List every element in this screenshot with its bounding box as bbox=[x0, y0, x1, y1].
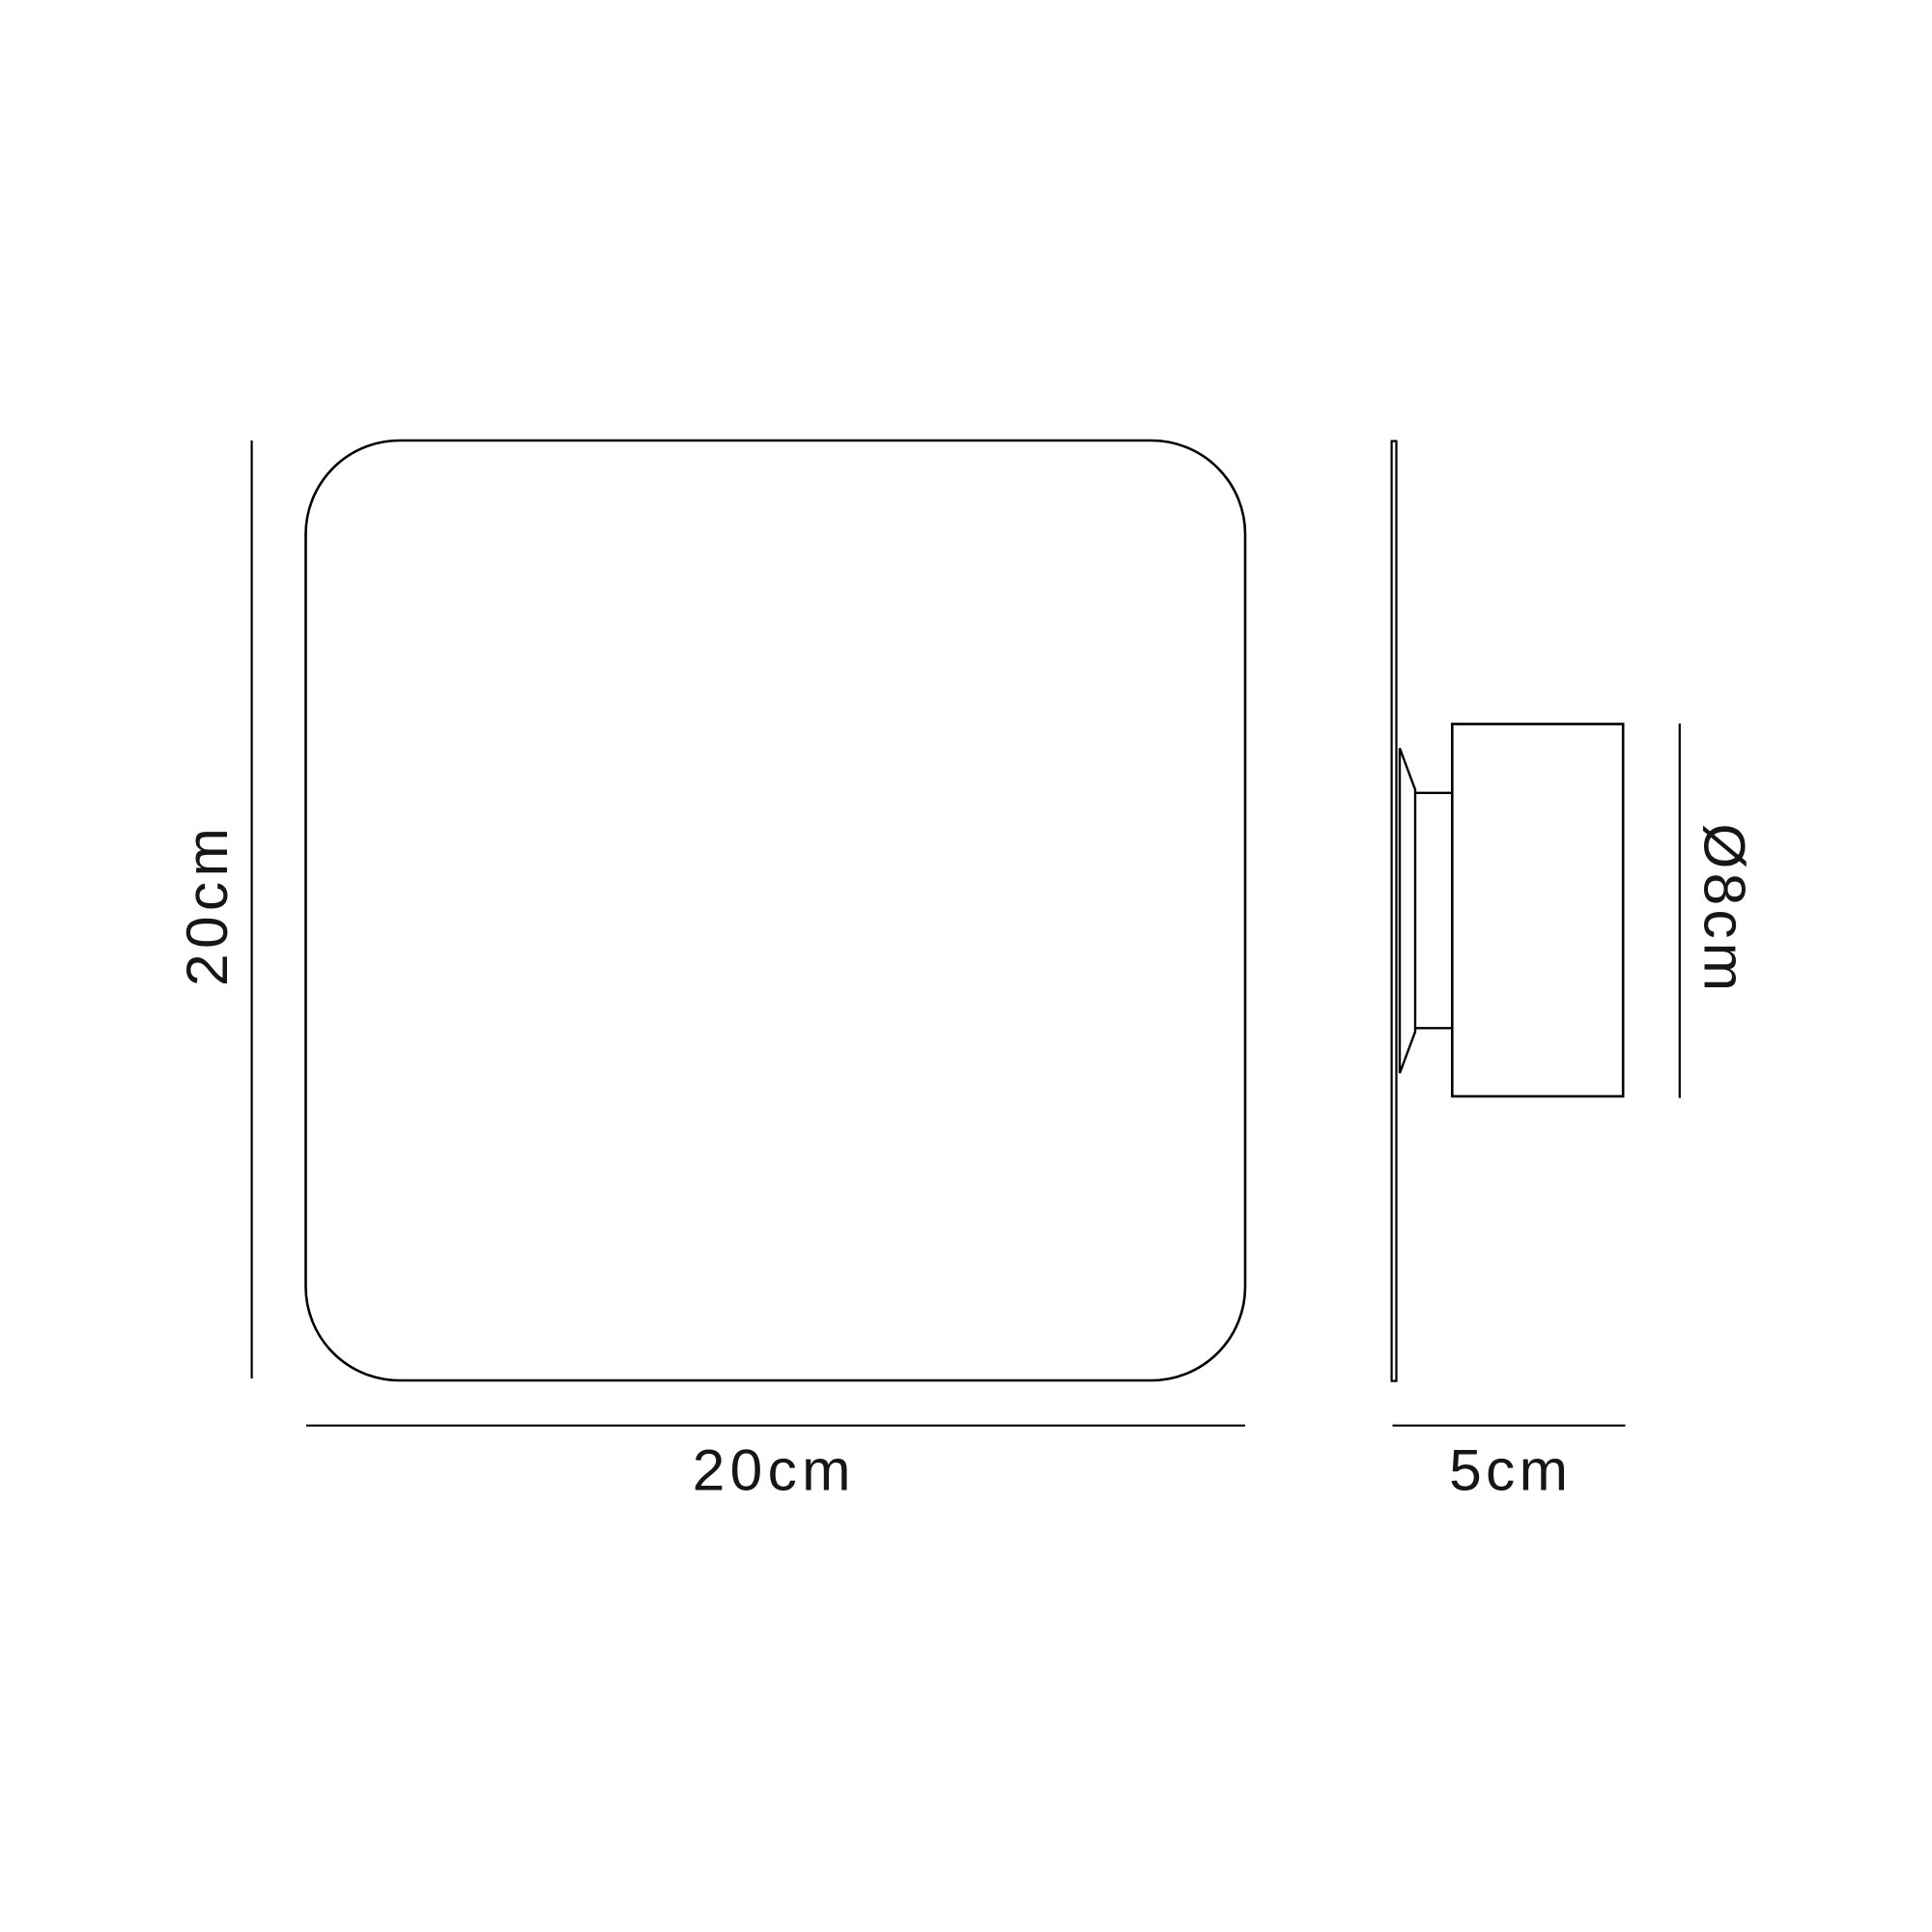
svg-text:20cm: 20cm bbox=[174, 823, 240, 986]
svg-text:20cm: 20cm bbox=[693, 1437, 856, 1503]
svg-text:Ø8cm: Ø8cm bbox=[1692, 823, 1758, 995]
svg-text:5cm: 5cm bbox=[1449, 1437, 1572, 1503]
